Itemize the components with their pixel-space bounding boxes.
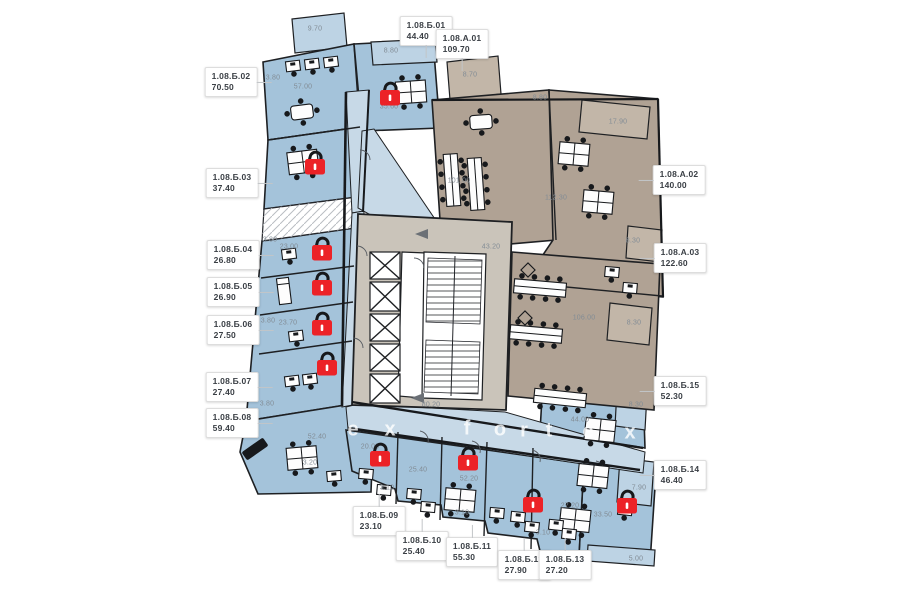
unit-label-area: 25.40 [403, 546, 442, 557]
unit-label-code: 1.08.Б.03 [213, 172, 252, 183]
dimension-label: 3.80 [261, 318, 275, 325]
unit-label[interactable]: 1.08.Б.0727.40 [206, 372, 259, 402]
unit-label-code: 1.08.А.03 [661, 247, 700, 258]
unit-label[interactable]: 1.08.Б.0526.90 [207, 277, 260, 307]
dimension-label: 5.00 [629, 556, 643, 563]
lock-icon[interactable] [309, 269, 335, 297]
dimension-label: 27.20 [561, 503, 580, 510]
watermark-letter: x [624, 422, 635, 445]
unit-label-area: 27.50 [214, 330, 253, 341]
dimension-label: 17.90 [609, 119, 628, 126]
unit-label-code: 1.08.Б.13 [546, 554, 585, 565]
unit-label-code: 1.08.Б.09 [360, 510, 399, 521]
dimension-label: 52.20 [460, 476, 479, 483]
unit-label-code: 1.08.Б.12 [505, 554, 544, 565]
unit-label-area: 59.40 [213, 423, 252, 434]
unit-label-area: 109.70 [443, 44, 482, 55]
unit-label[interactable]: 1.08.Б.0426.80 [207, 240, 260, 270]
unit-label-code: 1.08.Б.04 [214, 244, 253, 255]
unit-label[interactable]: 1.08.А.03122.60 [654, 243, 707, 273]
dimension-label: 3.80 [266, 75, 280, 82]
dimension-label: 8.30 [627, 320, 641, 327]
lock-icon[interactable] [314, 349, 340, 377]
unit-label[interactable]: 1.08.Б.0859.40 [206, 408, 259, 438]
lock-icon[interactable] [309, 309, 335, 337]
unit-label-code: 1.08.Б.02 [212, 71, 251, 82]
unit-label-area: 27.90 [505, 565, 544, 576]
dimension-label: 8.70 [463, 72, 477, 79]
unit-label-area: 23.10 [360, 521, 399, 532]
unit-label-code: 1.08.А.01 [443, 33, 482, 44]
unit-label-area: 70.50 [212, 82, 251, 93]
unit-label-area: 27.20 [546, 565, 585, 576]
unit-label-code: 1.08.А.02 [660, 169, 699, 180]
lock-icon[interactable] [309, 234, 335, 262]
dimension-label: 101.00 [448, 178, 471, 185]
dimension-label: 112.30 [545, 195, 567, 202]
watermark-letter: o [494, 419, 506, 442]
stairs [422, 252, 486, 400]
unit-label-code: 1.08.Б.06 [214, 319, 253, 330]
watermark-letter: f [464, 418, 471, 441]
lock-icon[interactable] [614, 487, 640, 515]
unit-label-code: 1.08.Б.11 [453, 541, 491, 552]
elevator-shafts [370, 252, 400, 403]
dimension-label: 3.80 [260, 401, 274, 408]
lock-icon[interactable] [377, 79, 403, 107]
unit-label-code: 1.08.Б.15 [661, 380, 700, 391]
unit-label-area: 27.40 [213, 387, 252, 398]
dimension-label: 57.00 [294, 84, 313, 91]
unit-label[interactable]: 1.08.Б.1446.40 [654, 460, 707, 490]
dimension-label: 3.10 [380, 485, 394, 492]
dimension-label: 8.30 [629, 402, 643, 409]
unit-label[interactable]: 1.08.Б.0627.50 [207, 315, 260, 345]
lock-icon[interactable] [367, 440, 393, 468]
dimension-label: 9.70 [308, 26, 322, 33]
unit-label-code: 1.08.Б.10 [403, 535, 442, 546]
unit-label-area: 52.30 [661, 391, 700, 402]
dimension-label: 52.40 [308, 434, 327, 441]
dimension-label: 3.80 [263, 237, 277, 244]
unit-label[interactable]: 1.08.Б.1155.30 [446, 537, 498, 567]
unit-label[interactable]: 1.08.А.02140.00 [653, 165, 706, 195]
unit-label-code: 1.08.Б.05 [214, 281, 253, 292]
unit-label-area: 122.60 [661, 258, 700, 269]
dimension-label: 8.80 [384, 48, 398, 55]
dimension-label: 23.00 [280, 244, 299, 251]
watermark-letter: t [546, 420, 553, 443]
dimension-label: 3.10 [536, 530, 550, 537]
dimension-label: 106.00 [573, 315, 596, 322]
unit-label-area: 26.90 [214, 292, 253, 303]
unit-label[interactable]: 1.08.А.01109.70 [436, 29, 489, 59]
unit-label[interactable]: 1.08.Б.0337.40 [206, 168, 259, 198]
floor-plan-canvas: 1.08.Б.0144.401.08.А.01109.701.08.Б.0270… [0, 0, 900, 604]
watermark-letter: x [384, 419, 395, 442]
watermark-letter: e [582, 421, 593, 444]
dimension-label: 3.10 [455, 510, 469, 517]
unit-label-area: 26.80 [214, 255, 253, 266]
unit-label-area: 55.30 [453, 552, 491, 563]
watermark-letter: e [347, 419, 358, 442]
unit-label-code: 1.08.Б.08 [213, 412, 252, 423]
unit-label-area: 140.00 [660, 180, 699, 191]
watermark-letter: r [520, 420, 528, 443]
floor-plan-drawing [0, 0, 900, 604]
unit-label[interactable]: 1.08.Б.1552.30 [654, 376, 707, 406]
unit-label-code: 1.08.Б.14 [661, 464, 700, 475]
dimension-label: 25.40 [409, 467, 428, 474]
unit-label[interactable]: 1.08.Б.0270.50 [205, 67, 258, 97]
dimension-label: 80.20 [422, 402, 441, 409]
unit-label-code: 1.08.Б.07 [213, 376, 252, 387]
lock-icon[interactable] [520, 486, 546, 514]
unit-label[interactable]: 1.08.Б.1327.20 [539, 550, 592, 580]
lock-icon[interactable] [302, 148, 328, 176]
unit-polygon[interactable] [246, 228, 355, 421]
dimension-label: 3.20 [303, 460, 317, 467]
dimension-label: 33.50 [594, 512, 613, 519]
unit-label-area: 37.40 [213, 183, 252, 194]
dimension-label: 8.80 [533, 95, 547, 102]
dimension-label: 43.20 [482, 244, 501, 251]
dimension-label: 23.70 [279, 320, 298, 327]
unit-label[interactable]: 1.08.Б.1025.40 [396, 531, 449, 561]
unit-label-area: 46.40 [661, 475, 700, 486]
dimension-label: 8.30 [626, 238, 640, 245]
lock-icon[interactable] [455, 444, 481, 472]
